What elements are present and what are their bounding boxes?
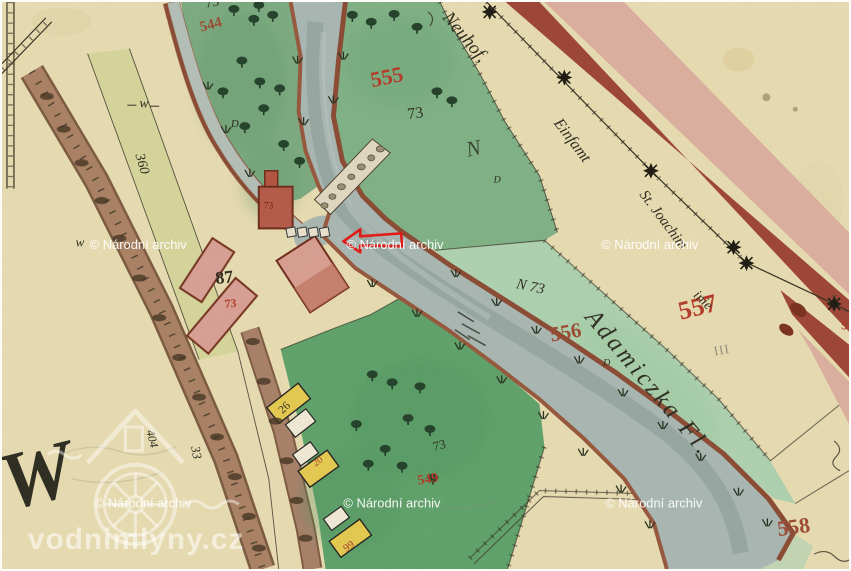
map-svg: 544 73 555 73 N D D 556 N 73 D Adamiczka… — [2, 2, 849, 569]
watermark-archive-4: © Národní archiv — [95, 495, 193, 510]
map-canvas: 544 73 555 73 N D D 556 N 73 D Adamiczka… — [0, 0, 851, 571]
watermark-archive-2: © Národní archiv — [346, 237, 444, 252]
paper-grain — [2, 2, 849, 569]
watermark-archive-6: © Národní archiv — [605, 495, 703, 510]
watermark-archive-1: © Národní archiv — [90, 237, 188, 252]
watermark-archive-3: © Národní archiv — [601, 237, 699, 252]
watermark-archive-5: © Národní archiv — [343, 495, 441, 510]
watermark-site: vodnimlyny.cz — [28, 523, 244, 556]
